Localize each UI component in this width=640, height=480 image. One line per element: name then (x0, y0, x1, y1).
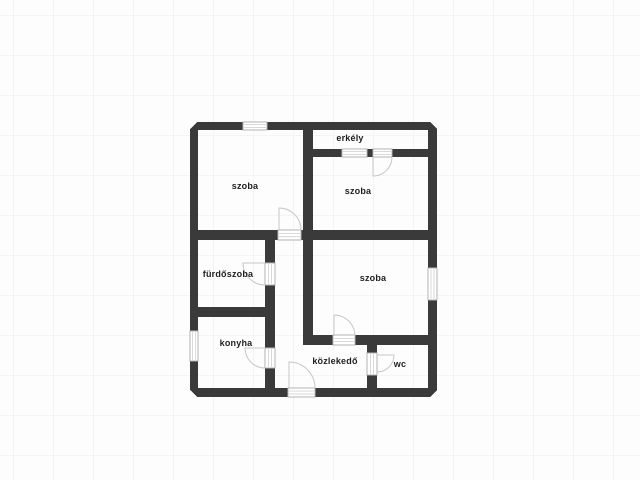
floor-plan-canvas: szoba erkély szoba szoba fürdőszoba kony… (0, 0, 640, 480)
wall-segment (301, 230, 437, 240)
window-kitchen (190, 331, 198, 361)
window-right-room (428, 268, 437, 300)
windows (190, 122, 437, 361)
wall-segment (355, 335, 437, 345)
room-label-kozlekedo: közlekedő (312, 356, 358, 366)
wall-segment (392, 149, 437, 157)
wall-segment (265, 368, 275, 397)
room-label-szoba-middle: szoba (360, 273, 387, 283)
door-threshold-wc (367, 353, 377, 375)
room-label-szoba-top-right: szoba (345, 186, 372, 196)
door-swing-arc (279, 208, 301, 230)
floor-plan: szoba erkély szoba szoba fürdőszoba kony… (0, 0, 640, 480)
room-label-konyha: konyha (220, 338, 254, 348)
door-swing-arc (245, 348, 265, 368)
door-swing-arc (334, 315, 355, 336)
door-threshold-room-top-left (278, 230, 301, 240)
wall-segment (367, 149, 373, 157)
room-label-furdoszoba: fürdőszoba (203, 269, 254, 279)
room-label-erkely: erkély (336, 133, 363, 143)
wall-segment (367, 345, 377, 353)
wall-segment (367, 375, 377, 390)
room-label-szoba-top-left: szoba (232, 181, 259, 191)
wall-segment (303, 335, 333, 345)
door-threshold-room-middle (333, 335, 355, 345)
door-threshold-kitchen (265, 348, 275, 368)
wall-segment (190, 307, 275, 317)
window-top-room (243, 122, 267, 130)
wall-segment (303, 149, 342, 157)
window-balcony (342, 149, 367, 157)
door-swing-arc (289, 362, 315, 388)
door-threshold-balcony (373, 149, 392, 157)
door-threshold-bathroom (265, 263, 275, 285)
door-threshold-entrance (288, 388, 315, 397)
wall-segment (265, 230, 275, 263)
door-swing-arc (377, 355, 394, 372)
door-swing-arc (373, 157, 392, 176)
room-label-wc: wc (393, 359, 406, 369)
